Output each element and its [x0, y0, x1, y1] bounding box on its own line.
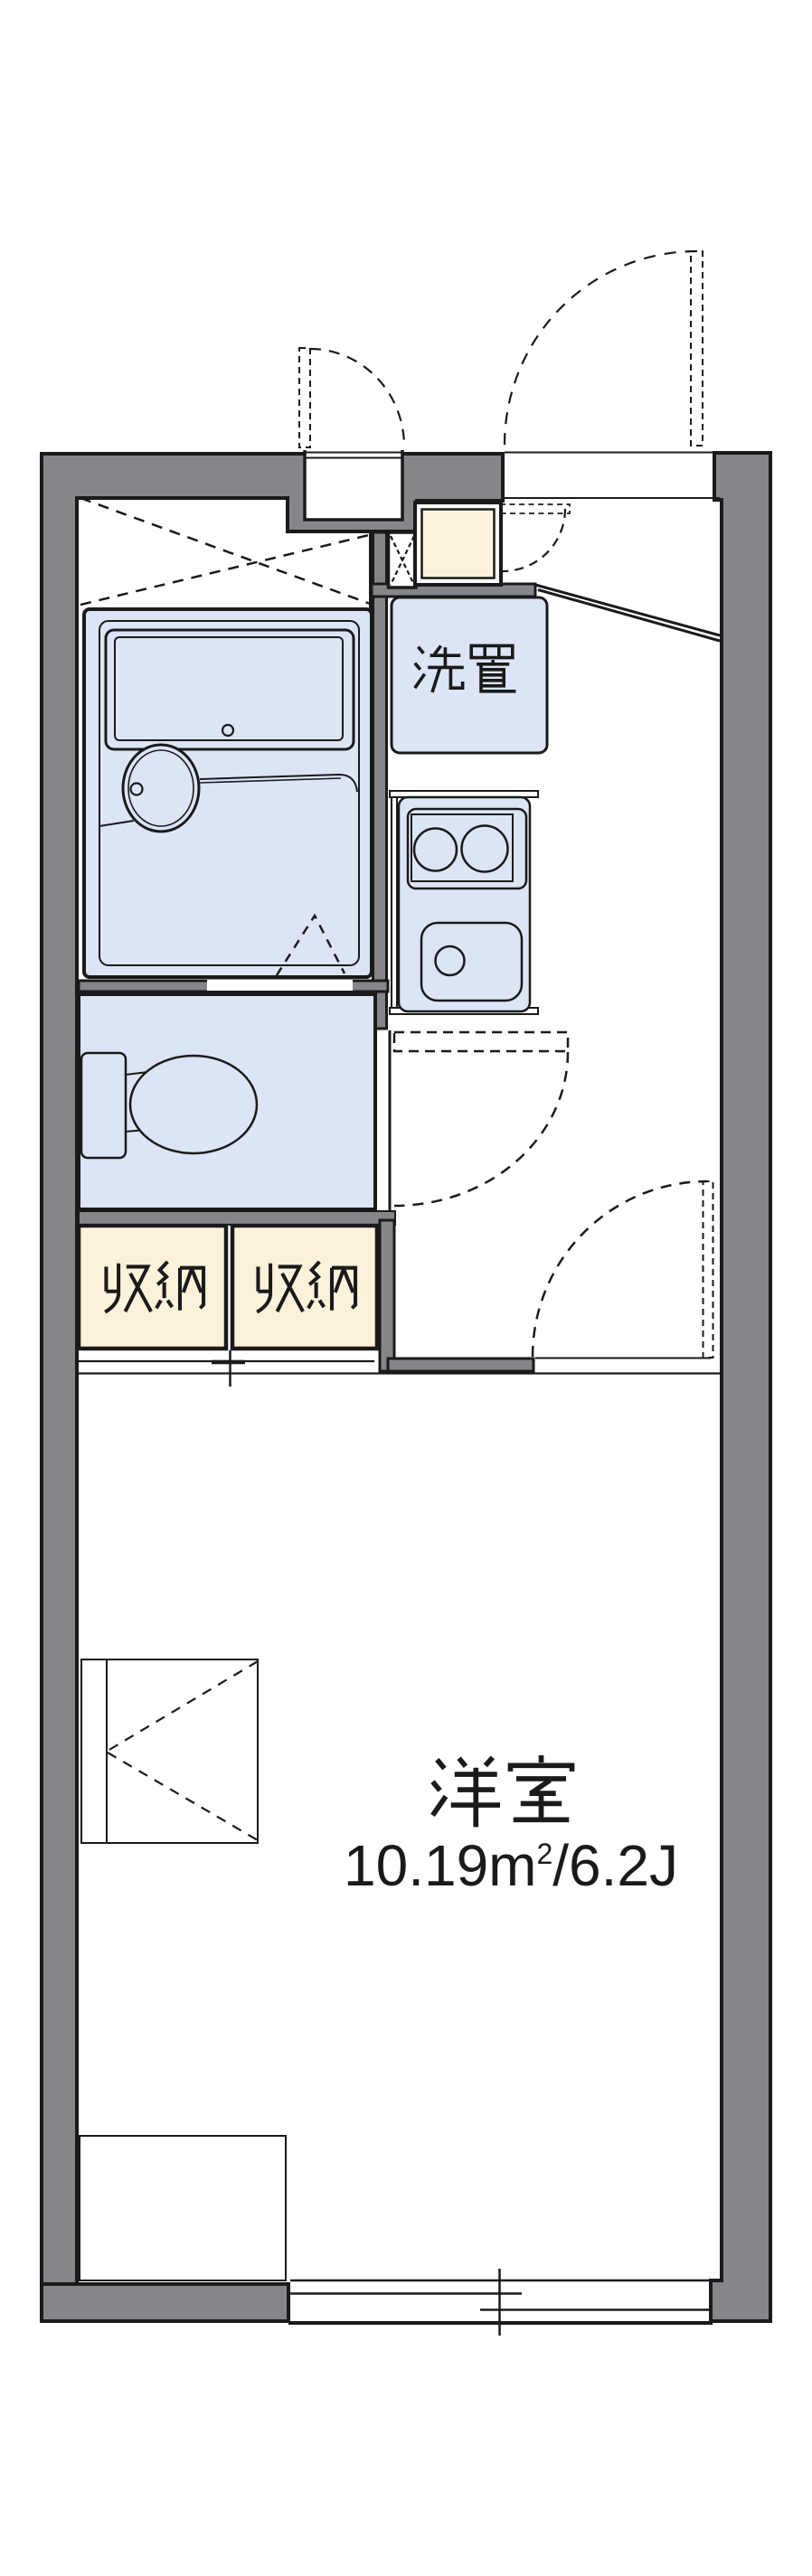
svg-text:10.19m2/6.2J: 10.19m2/6.2J — [344, 1833, 678, 1898]
